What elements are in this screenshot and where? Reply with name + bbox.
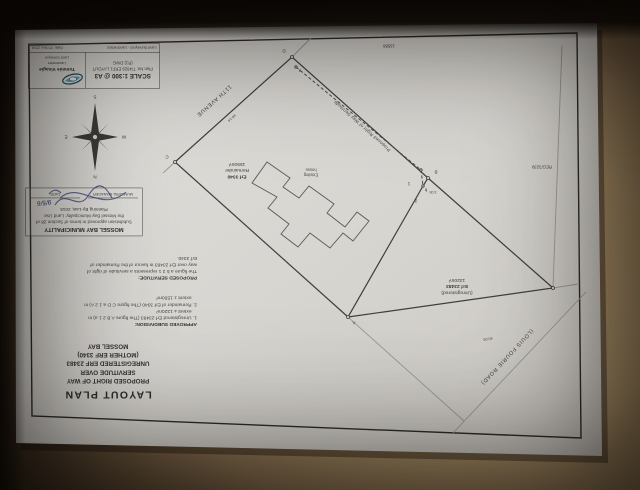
plan-number: Plan No: T/4829 ERF1 LAYOUT xyxy=(88,67,159,72)
surveyor-title-2: Land Surveyor xyxy=(30,56,84,61)
subdivision-line: extent ± 1320m² xyxy=(41,308,197,315)
plan-date: Date: 05 Nov 2024 xyxy=(32,46,63,51)
approval-stamp: MOSSEL BAY MUNICIPALITY Subdivision appr… xyxy=(26,188,143,236)
date-label: DATE xyxy=(30,192,80,198)
plan-title: LAYOUT PLAN xyxy=(46,388,171,400)
info-box: SCALE 1:300 @ A3 Plan No: T/4829 ERF1 LA… xyxy=(28,44,160,89)
subdivision-heading: APPROVED SUBDIVISION: xyxy=(41,321,197,328)
servitude-note: PROPOSED SERVITUDE: The figure a b 2 1 r… xyxy=(41,255,197,281)
servitude-line: way over Erf 23483 in favour of the Rema… xyxy=(41,261,197,268)
title-line: MOSSEL BAY xyxy=(46,342,171,351)
photo-of-layout-plan: LAYOUT PLAN PROPOSED RIGHT OF WAY SERVIT… xyxy=(0,0,640,490)
point-label-A: A xyxy=(352,321,355,326)
stamp-body-line: Subdivision approved in terms of Section… xyxy=(30,219,138,225)
title-line: SERVITUDE OVER xyxy=(46,368,171,377)
neighbour-erf-top: 16588 xyxy=(383,44,395,49)
title-line: (MOTHER ERF 3340) xyxy=(46,350,171,359)
point-label-B: B xyxy=(434,170,437,175)
surveyor-title-1: Landmeter xyxy=(30,61,84,66)
servitude-line: The figure a b 2 1 represents a servitud… xyxy=(41,268,197,275)
house-label: Existing house xyxy=(304,167,318,177)
servitude-line: Erf 3340. xyxy=(41,255,197,262)
subdivision-line: 1. Unregistered Erf 23483 (The figure A … xyxy=(41,314,197,321)
stamp-signature-row: MUNICIPAL MANAGER DATE 9/5/6 xyxy=(30,192,138,198)
subdivision-note: APPROVED SUBDIVISION: 1. Unregistered Er… xyxy=(41,295,197,328)
title-line: PROPOSED RIGHT OF WAY xyxy=(46,376,171,385)
compass-south-label: S xyxy=(93,95,96,100)
neighbour-erf-right: REG/3239 xyxy=(532,165,552,170)
dwg-ref: (R1) DWG xyxy=(88,61,159,66)
erf-sub: (Unregistered) xyxy=(441,289,472,295)
erf-sub: Remainder xyxy=(225,167,249,173)
erf-area: 1320m² xyxy=(441,276,472,282)
erf-area: 1550m² xyxy=(225,160,249,166)
surveyor-name: Tommie Visagie xyxy=(30,67,84,73)
stamp-heading: MOSSEL BAY MUNICIPALITY xyxy=(30,227,138,233)
point-label-2: 2 xyxy=(415,199,418,204)
stamp-body-line: the Mossel Bay Municipality: Land Use xyxy=(30,213,138,219)
subdivision-line: 2. Remainder of Erf 3340 (The figure C D… xyxy=(41,301,197,308)
surveyor-logo-cell: Tommie Visagie Landmeter Land Surveyor xyxy=(29,53,86,89)
parcel-label-unregistered: (Unregistered) Erf 23483 1320m² xyxy=(441,276,472,295)
dimension-jog: 3.00 xyxy=(429,190,436,195)
title-block: LAYOUT PLAN PROPOSED RIGHT OF WAY SERVIT… xyxy=(46,342,171,401)
servitude-heading: PROPOSED SERVITUDE: xyxy=(41,275,197,282)
point-label-C: C xyxy=(165,155,168,160)
info-strip: Land Surveyors · Landmeters Date: 05 Nov… xyxy=(29,44,160,53)
scale-cell: SCALE 1:300 @ A3 Plan No: T/4829 ERF1 LA… xyxy=(86,53,160,89)
compass-north-label: N xyxy=(93,175,96,180)
point-label-1: 1 xyxy=(408,182,411,187)
compass-east-label: E xyxy=(64,135,67,140)
compass-west-label: W xyxy=(122,135,126,140)
point-label-a: a xyxy=(299,69,302,74)
surveyor-logo-icon xyxy=(61,73,84,85)
house-label-line: Existing xyxy=(304,172,318,177)
point-label-b: b xyxy=(425,188,428,193)
parcel-label-remainder: Erf 3340 Remainder 1550m² xyxy=(225,160,249,179)
scale-text: SCALE 1:300 @ A3 xyxy=(88,73,159,80)
erf-number: Erf 3340 xyxy=(225,173,249,179)
title-line: UNREGISTERED ERF 23483 xyxy=(46,359,171,368)
house-label-line: house xyxy=(304,167,318,172)
point-label-D: D xyxy=(282,49,285,54)
surveyor-tagline: Land Surveyors · Landmeters xyxy=(107,46,156,51)
municipal-manager-label: MUNICIPAL MANAGER xyxy=(88,192,138,198)
